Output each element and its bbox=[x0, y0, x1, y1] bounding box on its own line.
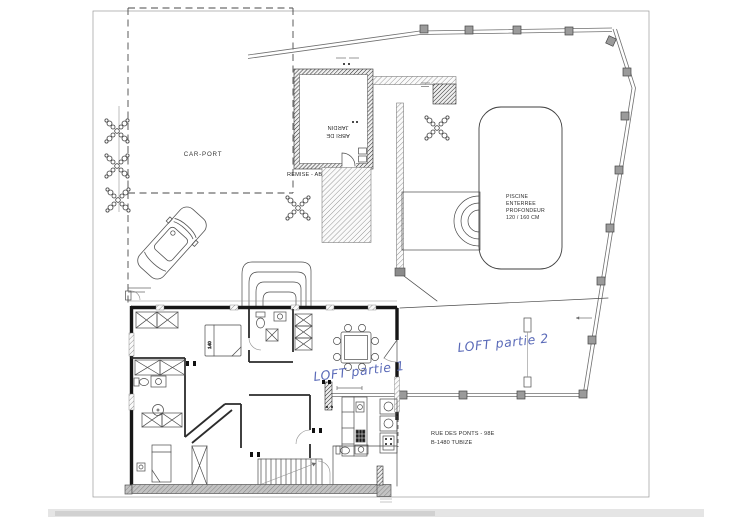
svg-text:ABRI DE: ABRI DE bbox=[326, 132, 350, 138]
wc-fixtures bbox=[134, 376, 166, 387]
scanned-floor-plan-page: CAR-PORT bbox=[0, 0, 736, 520]
scan-shadow bbox=[48, 509, 704, 517]
bed-dimension-label: 140 bbox=[207, 341, 212, 349]
car-top-view bbox=[132, 201, 212, 284]
radiator-marks bbox=[186, 361, 333, 457]
paved-yard bbox=[322, 168, 371, 243]
bathroom-fixtures bbox=[256, 312, 286, 341]
loft2-label: LOFT partie 2 bbox=[457, 330, 550, 355]
svg-text:120 / 160 CM: 120 / 160 CM bbox=[506, 215, 540, 221]
svg-text:JARDIN: JARDIN bbox=[327, 124, 348, 130]
garden-paths bbox=[242, 262, 311, 306]
carport-label: CAR-PORT bbox=[184, 151, 223, 158]
garden-shed: ABRI DE JARDIN REMISE - ABRI bbox=[287, 58, 373, 243]
house: 140 bbox=[125, 301, 405, 502]
svg-text:PISCINE: PISCINE bbox=[506, 194, 528, 200]
floor-plan-drawing: CAR-PORT bbox=[0, 0, 736, 520]
illegible-annotation bbox=[128, 288, 151, 292]
loft1-label: LOFT partie 1 bbox=[313, 358, 406, 384]
bottom-wall bbox=[125, 466, 392, 502]
cabine-block bbox=[433, 84, 456, 104]
pool bbox=[479, 107, 562, 269]
address-label: RUE DES PONTS - 98E B-1480 TUBIZE bbox=[431, 431, 495, 446]
address-line2: B-1480 TUBIZE bbox=[431, 440, 472, 446]
pool-label: PISCINE ENTERREE PROFONDEUR 120 / 160 CM bbox=[506, 194, 545, 221]
svg-text:PROFONDEUR: PROFONDEUR bbox=[506, 208, 545, 214]
svg-text:ENTERREE: ENTERREE bbox=[506, 201, 536, 207]
retaining-wall bbox=[373, 77, 456, 302]
pool-area: PISCINE ENTERREE PROFONDEUR 120 / 160 CM bbox=[402, 107, 562, 269]
address-line1: RUE DES PONTS - 98E bbox=[431, 431, 495, 437]
staircase bbox=[258, 459, 330, 487]
bed-master: 140 bbox=[205, 325, 241, 356]
illegible-annotation bbox=[336, 58, 359, 65]
